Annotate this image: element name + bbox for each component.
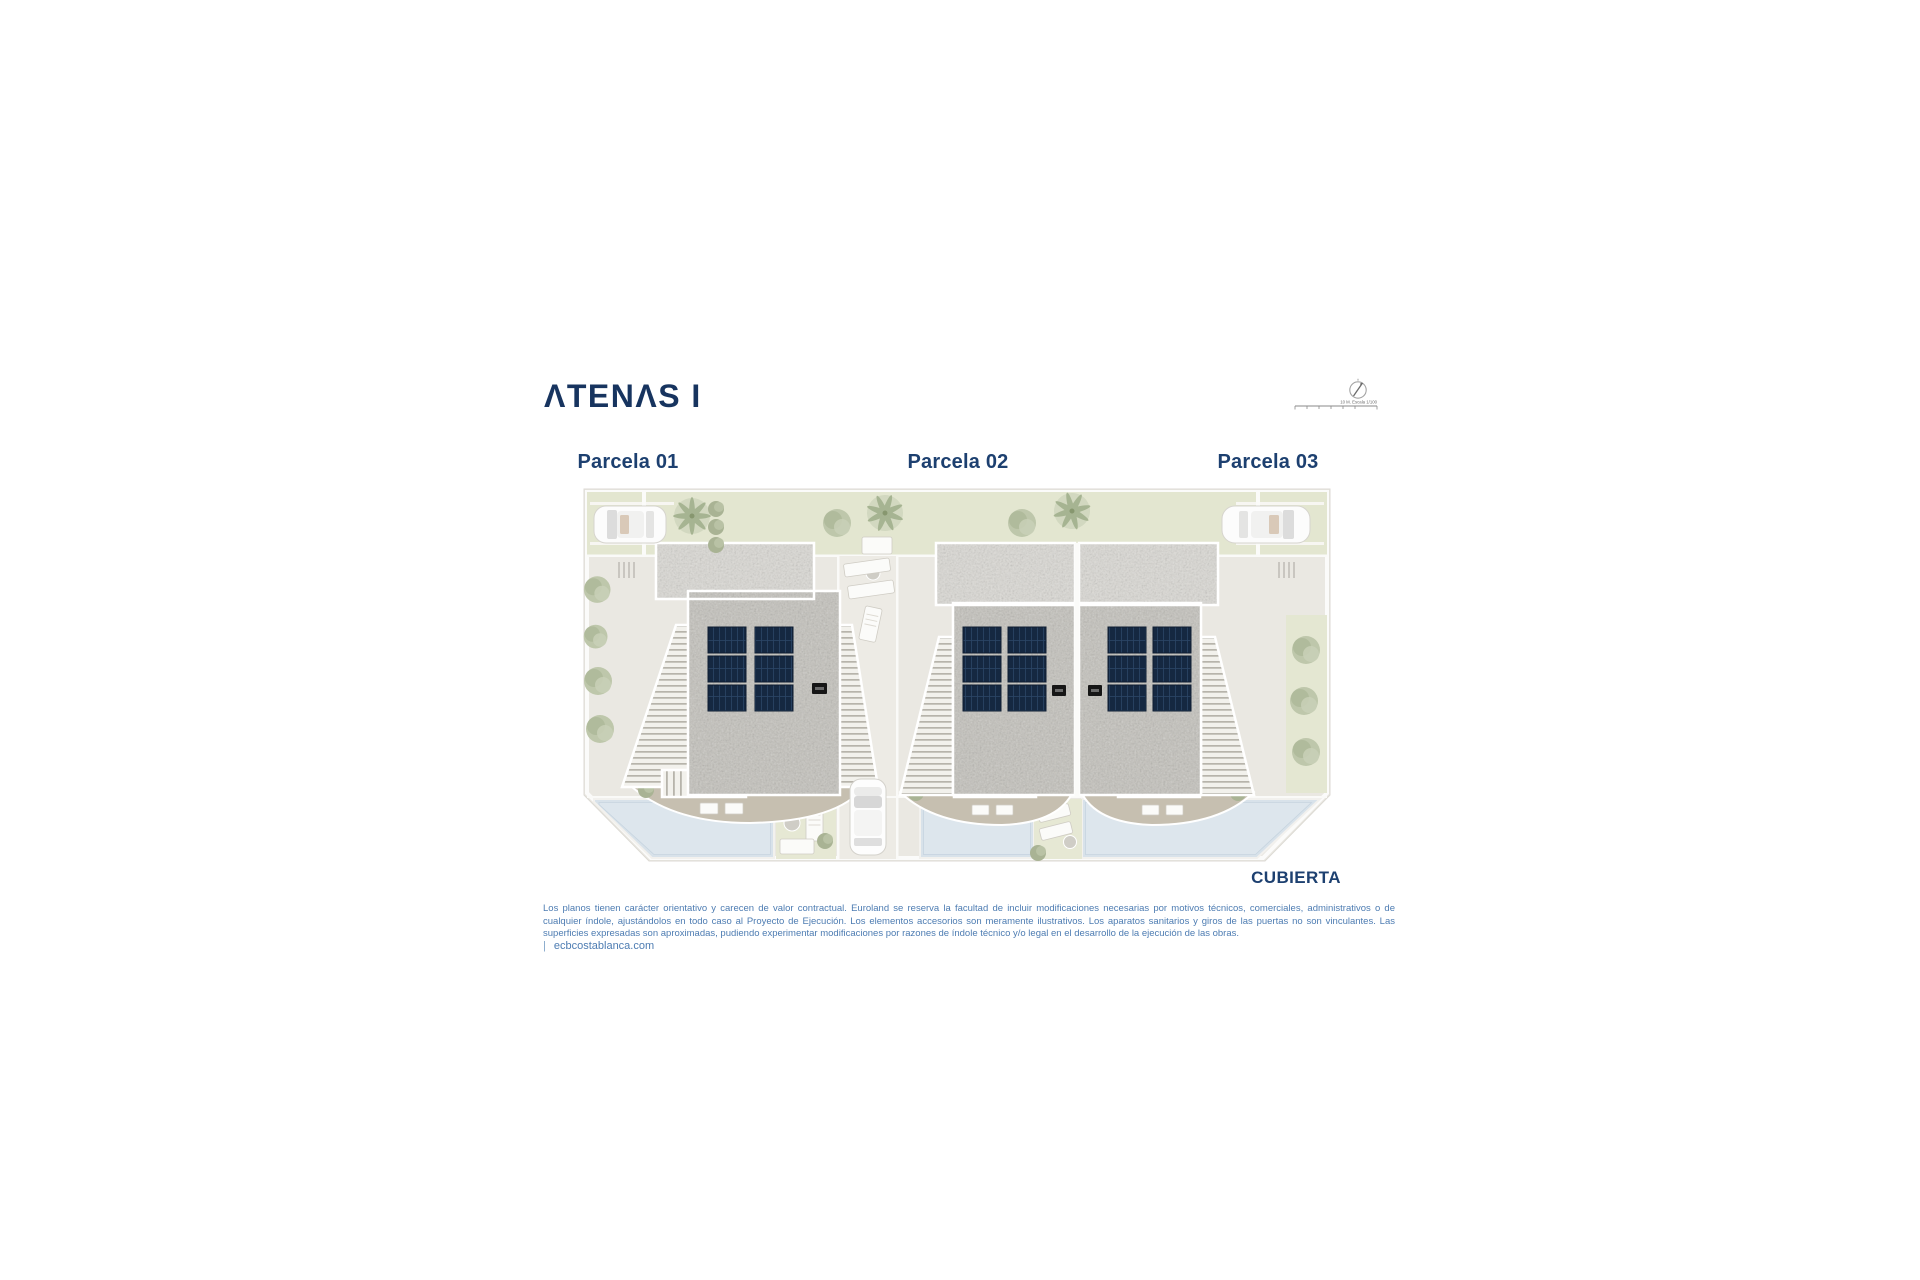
site-plan [582,487,1332,865]
car-parked-left [594,506,666,543]
footer-separator: | [543,940,546,952]
brochure-page: ΛTENΛS I 10 M. Escala 1/100 Parcela 01 P… [0,0,1920,1280]
car-parked-right [1222,506,1310,543]
car-driveway [850,779,886,855]
legal-disclaimer: Los planos tienen carácter orientativo y… [543,903,1395,941]
brand-logo: ΛTENΛS I [544,378,702,415]
party-wall-line [1075,543,1080,797]
website-text: ecbcostablanca.com [554,940,654,952]
scale-text: 10 M. Escala 1/100 [1340,400,1377,405]
compass-icon [1350,379,1366,398]
scale-bar: 10 M. Escala 1/100 [1295,400,1378,410]
parcel-label-03: Parcela 03 [1218,451,1319,474]
compass-and-scale: 10 M. Escala 1/100 [1288,366,1398,416]
parcel-label-02: Parcela 02 [908,451,1009,474]
parcel-label-01: Parcela 01 [578,451,679,474]
footer: |ecbcostablanca.com [543,940,654,952]
plan-view-label: CUBIERTA [1251,868,1341,888]
